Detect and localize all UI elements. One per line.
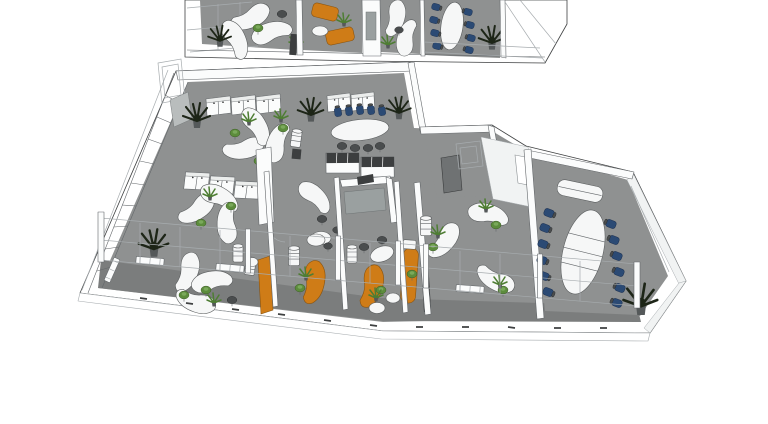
facade-post	[634, 262, 640, 308]
printer	[292, 149, 302, 160]
storage-cabinet	[206, 96, 231, 116]
storage-cabinet	[256, 94, 281, 114]
coffee-table	[312, 26, 328, 36]
facade-post	[538, 254, 543, 298]
drawer-pedestal	[421, 216, 432, 236]
facade-post	[396, 241, 401, 285]
stool-stack	[233, 244, 243, 262]
conference-room	[524, 149, 686, 333]
facade-post	[424, 244, 429, 288]
upper-wall-3	[420, 0, 425, 56]
glass-front-cabinet	[324, 150, 361, 176]
facade-post	[98, 212, 104, 262]
drawer-pedestal	[347, 245, 357, 263]
dark-door	[441, 155, 462, 193]
upper-floor-strip	[185, 0, 567, 63]
white-stool	[369, 303, 385, 314]
kitchenette-front	[344, 188, 386, 214]
office-3d-viewport[interactable]	[0, 0, 768, 424]
upper-wall-4	[500, 0, 506, 58]
facade-post	[246, 229, 251, 273]
stool-stack	[290, 128, 302, 147]
upper-door	[366, 12, 376, 40]
main-floor-section	[78, 59, 686, 341]
upper-wall	[296, 0, 303, 55]
white-stool	[386, 293, 400, 303]
facade-post	[336, 236, 341, 280]
render-stage	[0, 0, 768, 424]
